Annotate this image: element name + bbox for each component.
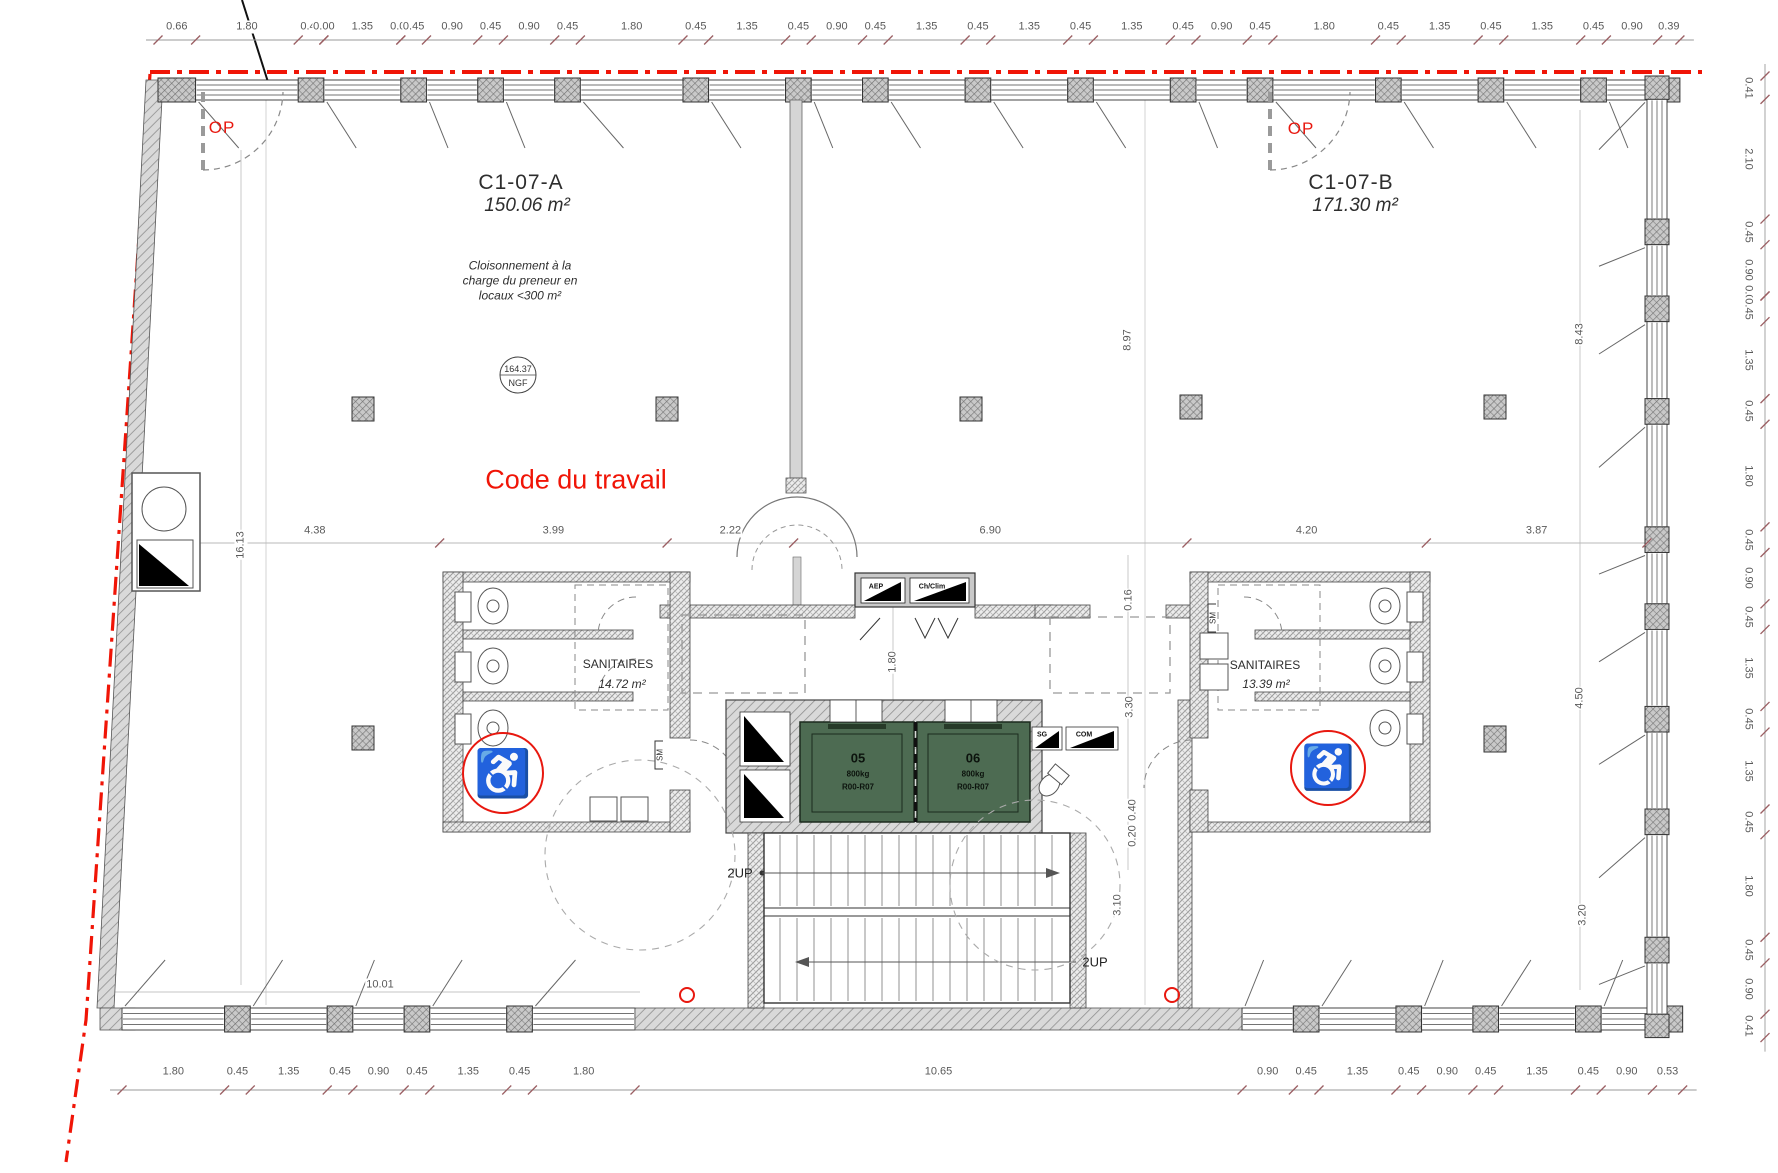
dim-label: 3.87 [1525, 525, 1548, 538]
dim-label: 0.45 [1171, 21, 1194, 34]
dim-label: 1.35 [915, 21, 938, 34]
dim-label: 0.90 [1436, 1066, 1459, 1079]
dim-label: 0.45 [405, 1066, 428, 1079]
dim-label: 0.20 [1127, 824, 1140, 847]
dim-label: 1.35 [1346, 1066, 1369, 1079]
elevator-05-levels: R00-R07 [842, 783, 874, 792]
dim-label: 1.35 [735, 21, 758, 34]
dim-label: 0.90 [1620, 21, 1643, 34]
shaft-aep-label: AEP [869, 584, 883, 591]
partition-note-2: charge du preneur en [463, 274, 578, 289]
dim-label: 0.90 [825, 21, 848, 34]
dim-label: 1.35 [1525, 1066, 1548, 1079]
dim-label: 0.45 [1742, 605, 1755, 628]
dim-label: 0.45 [684, 21, 707, 34]
dim-label: 0.16 [1123, 588, 1136, 611]
accessible-symbol-left: ♿ [462, 732, 544, 814]
unit-b-id: C1-07-B [1308, 171, 1393, 195]
ngf-value: 164.37 [504, 364, 532, 374]
dim-label: 1.80 [1313, 21, 1336, 34]
dim-label: 0.45 [1742, 810, 1755, 833]
dim-label: 8.97 [1122, 328, 1135, 351]
dim-label: 0.90 [1742, 566, 1755, 589]
dim-label: 1.35 [1742, 348, 1755, 371]
dim-label: 0.90 [517, 21, 540, 34]
dim-label: 16.13 [235, 530, 248, 560]
unit-a-area: 150.06 m² [484, 195, 570, 217]
dim-label: 6.90 [979, 525, 1002, 538]
unit-b-area: 171.30 m² [1312, 195, 1398, 217]
dim-label: 4.38 [303, 525, 326, 538]
dim-label: 1.80 [887, 650, 900, 673]
shaft-sg-label: SG [1037, 732, 1047, 739]
elevator-05-id: 05 [851, 751, 865, 766]
dim-label: 0.66 [165, 21, 188, 34]
dim-label: 0.90 [367, 1066, 390, 1079]
dim-label: 1.35 [277, 1066, 300, 1079]
dim-label: 1.80 [1742, 464, 1755, 487]
sm-label-right: SM [1209, 612, 1218, 624]
dim-label: 0.90 [440, 21, 463, 34]
dim-label: 0.90 [1210, 21, 1233, 34]
elevator-06-levels: R00-R07 [957, 783, 989, 792]
dim-label: 1.35 [1120, 21, 1143, 34]
shaft-com-label: COM [1076, 732, 1092, 739]
dim-label: 0.53 [1656, 1066, 1679, 1079]
dim-label: 1.80 [572, 1066, 595, 1079]
sm-label-left: SM [656, 749, 665, 761]
sanitaires-right-area: 13.39 m² [1242, 677, 1289, 691]
dim-label: 8.43 [1574, 322, 1587, 345]
wheelchair-icon: ♿ [474, 746, 531, 801]
dim-label: 0.45 [1577, 1066, 1600, 1079]
dim-label: 1.80 [1742, 874, 1755, 897]
dim-label: 3.99 [542, 525, 565, 538]
partition-note-3: locaux <300 m² [479, 289, 561, 304]
dim-label: 0.41 [1742, 76, 1755, 99]
dim-label: 0.90 [1615, 1066, 1638, 1079]
dim-10-01: 10.01 [365, 979, 395, 992]
dim-label: 0.45 [1294, 1066, 1317, 1079]
dim-label: 4.50 [1574, 686, 1587, 709]
dim-label: 0.39 [1657, 21, 1680, 34]
dim-label: 0.45 [479, 21, 502, 34]
dim-label: 3.10 [1112, 893, 1125, 916]
unit-a-id: C1-07-A [478, 171, 563, 195]
sanitaires-left-area: 14.72 m² [598, 677, 645, 691]
op-label-right: OP [1288, 119, 1315, 139]
dim-label: 0.40 [1127, 798, 1140, 821]
dim-label: 2.10 [1742, 148, 1755, 171]
dim-label: 0.45 [1742, 938, 1755, 961]
dim-label: 0.45 [1069, 21, 1092, 34]
dim-label: 0.45 [1742, 528, 1755, 551]
wheelchair-icon: ♿ [1301, 743, 1355, 793]
dim-label: 4.20 [1295, 525, 1318, 538]
dim-label: 0.45 [1742, 297, 1755, 320]
dim-label: 1.35 [351, 21, 374, 34]
dim-label: 0.45 [1742, 708, 1755, 731]
dim-label: 0.90 [1742, 977, 1755, 1000]
dim-label: 0.45 [402, 21, 425, 34]
op-label-left: OP [209, 118, 236, 138]
code-travail-label: Code du travail [485, 465, 667, 496]
dim-label: 0.90 [1256, 1066, 1279, 1079]
dim-label: 0.45 [787, 21, 810, 34]
dim-label: 0.45 [328, 1066, 351, 1079]
sanitaires-left-name: SANITAIRES [583, 657, 653, 671]
dim-label: 0.45 [1582, 21, 1605, 34]
dim-label: 0.45 [1397, 1066, 1420, 1079]
dim-label: 1.35 [1742, 759, 1755, 782]
accessible-symbol-right: ♿ [1290, 730, 1366, 806]
dim-label: 0.45 [1248, 21, 1271, 34]
dim-label: 2.22 [719, 525, 742, 538]
dim-label: 1.35 [1428, 21, 1451, 34]
dim-label: 0.45 [1474, 1066, 1497, 1079]
dim-label: 0.45 [1479, 21, 1502, 34]
dim-label: 0.45 [508, 1066, 531, 1079]
dim-label: 0.00 [312, 21, 335, 34]
stairs-up-left: 2UP [727, 866, 752, 881]
dim-label: 0.45 [1742, 220, 1755, 243]
dim-label: 0.90 [1742, 259, 1755, 282]
ngf-label: NGF [509, 378, 528, 388]
dim-label: 1.35 [1018, 21, 1041, 34]
dim-label: 1.80 [162, 1066, 185, 1079]
dim-label: 1.80 [235, 21, 258, 34]
shaft-chclim-label: Ch/Clim [919, 584, 945, 591]
dim-label: 0.45 [1377, 21, 1400, 34]
sanitaires-right-name: SANITAIRES [1230, 658, 1300, 672]
dim-label: 1.35 [457, 1066, 480, 1079]
dim-label: 1.80 [620, 21, 643, 34]
partition-note-1: Cloisonnement à la [469, 259, 572, 274]
dim-label: 10.65 [924, 1066, 954, 1079]
stairs-up-right: 2UP [1082, 955, 1107, 970]
dim-label: 0.41 [1742, 1014, 1755, 1037]
floor-plan: OP OP C1-07-A 150.06 m² C1-07-B 171.30 m… [0, 0, 1778, 1173]
dim-label: 1.35 [1531, 21, 1554, 34]
dim-label: 0.45 [226, 1066, 249, 1079]
elevator-06-id: 06 [966, 751, 980, 766]
elevator-06-capacity: 800kg [962, 770, 985, 779]
dim-label: 0.45 [1742, 400, 1755, 423]
dim-label: 3.30 [1124, 695, 1137, 718]
dim-label: 0.45 [966, 21, 989, 34]
dim-label: 1.35 [1742, 656, 1755, 679]
dim-label: 0.45 [864, 21, 887, 34]
elevator-05-capacity: 800kg [847, 770, 870, 779]
dim-label: 0.45 [556, 21, 579, 34]
dim-label: 3.20 [1577, 903, 1590, 926]
